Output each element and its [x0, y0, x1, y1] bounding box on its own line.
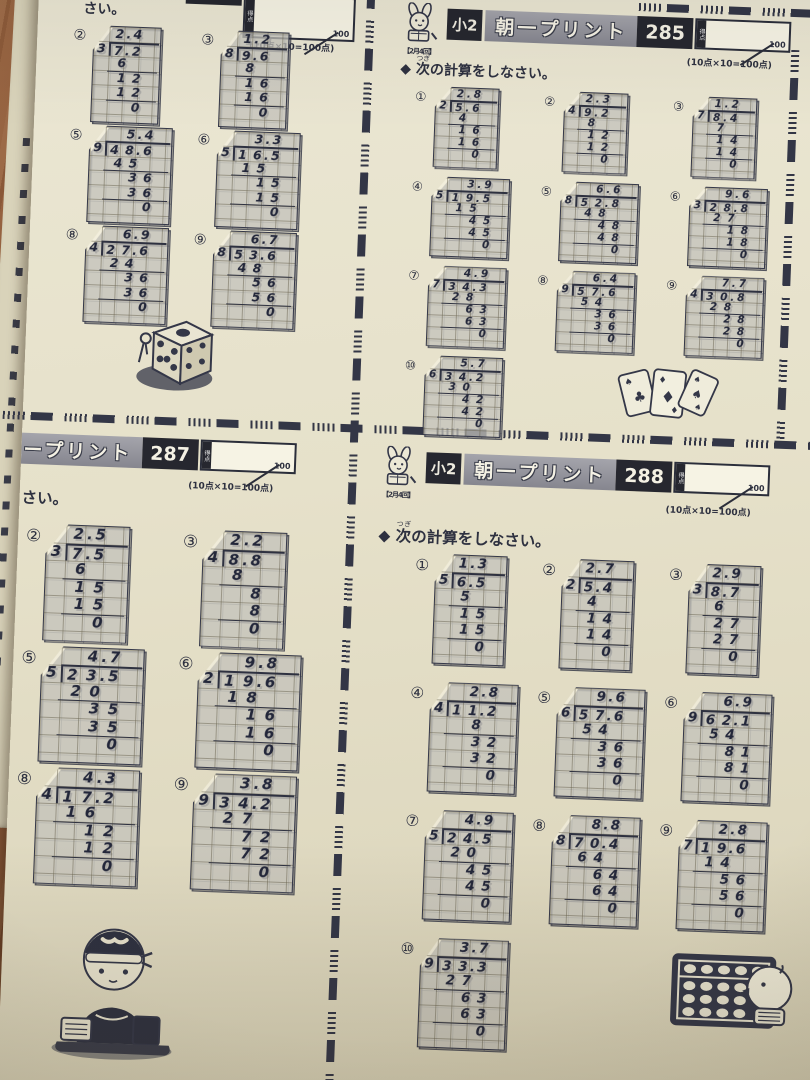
work-row: 0: [550, 898, 637, 918]
instruction-fragment: さい。: [83, 0, 126, 19]
divisor: 4: [203, 548, 223, 566]
work-row: 0: [692, 157, 754, 171]
division-problem: ⑦ 4.9 524.5 2045450: [402, 809, 533, 924]
score-box: 得点 100: [199, 440, 296, 475]
divisor: 4: [37, 785, 57, 803]
quadrant-285: 【2月4回】 小2 朝一プリント 285 得点 100 (10点×10=100点…: [373, 0, 810, 448]
division-problem: ⑥ 9.6 328.8 2718180: [667, 185, 799, 270]
problem-number: ⑧: [537, 273, 558, 289]
division-grid-card: 2.4 37.2 612120: [90, 25, 162, 125]
division-problem: ① 1.3 56.5 515150: [412, 553, 543, 668]
problem-number: ②: [73, 27, 94, 44]
problem-number: ⑧: [532, 817, 553, 836]
worksheet-paper: 284 得点 100 (10点×10=100点) さい。 ② 2.4 37.2 …: [0, 0, 810, 1080]
divisor: 4: [687, 288, 701, 301]
problem-number: ⑤: [21, 647, 42, 668]
division-grid-card: 9.8 219.6 1816160: [194, 651, 301, 771]
division-grid-card: 8.8 870.4 6464640: [549, 814, 641, 927]
problem-number: ⑩: [405, 357, 426, 373]
divisor: 2: [562, 576, 579, 593]
points-note: (10点×10=100点): [665, 502, 751, 518]
problem-number: ③: [183, 532, 204, 553]
division-problem: ③ 2.2 48.8 8880: [179, 529, 340, 652]
work-row: 0: [215, 203, 296, 221]
work-row: 0: [423, 893, 510, 913]
division-problem: ④ 3.9 519.5 1545450: [409, 175, 541, 260]
division-grid-card: 9.6 328.8 2718180: [687, 186, 768, 270]
divisor: 3: [689, 581, 706, 598]
division-grid-card: 6.4 957.6 5436360: [555, 270, 636, 354]
problem-number: ③: [669, 566, 690, 585]
division-grid-card: 1.3 56.5 515150: [432, 554, 508, 667]
series-title: 朝一プリント: [464, 454, 617, 491]
division-grid-card: 2.3 49.2 812120: [561, 91, 628, 174]
division-grid-card: 3.9 519.5 1545450: [429, 176, 510, 260]
divisor: 8: [561, 194, 575, 207]
division-grid-card: 3.3 516.5 1515150: [214, 130, 301, 230]
problem-number: ⑦: [405, 812, 426, 831]
work-row: 0: [434, 147, 496, 161]
division-grid-card: 2.8 411.2 832320: [427, 682, 519, 795]
problem-number: ⑨: [666, 277, 687, 293]
division-grid-card: 4.3 417.2 1612120: [33, 767, 140, 887]
divisor: 5: [432, 189, 446, 202]
division-grid-card: 4.9 524.5 2045450: [422, 810, 514, 923]
problem-number: ②: [544, 93, 565, 109]
division-problem: ② 2.4 37.2 612120: [70, 24, 202, 126]
problem-number: ②: [542, 561, 563, 580]
divisor: 8: [553, 832, 570, 849]
issue-label: 【2月4回】: [374, 489, 422, 501]
divisor: 8: [214, 245, 230, 260]
divisor: 5: [218, 145, 234, 160]
grade-label: 小2: [425, 452, 462, 484]
division-problem: ② 2.7 25.4 414140: [538, 558, 669, 673]
division-grid-card: 2.8 719.6 1456560: [675, 819, 767, 932]
division-grid-card: 4.9 734.3 2863630: [426, 265, 507, 349]
divisor: 5: [426, 827, 443, 844]
work-row: 0: [563, 152, 625, 166]
division-problem: ⑤ 9.6 657.6 5436360: [534, 686, 665, 801]
svg-text:♦: ♦: [670, 406, 679, 417]
work-row: 0: [91, 99, 158, 116]
problem-number: ⑨: [659, 822, 680, 841]
work-row: 0: [685, 336, 761, 351]
division-problem: ② 2.5 37.5 615150: [22, 523, 183, 646]
problem-number: ③: [201, 32, 222, 49]
points-note: (10点×10=100点): [188, 478, 274, 494]
problem-number: ⑤: [537, 689, 558, 708]
work-row: 0: [39, 734, 141, 755]
division-problem: ⑩ 5.7 634.2 3042420: [402, 354, 534, 439]
series-title-fragment: ープリント: [21, 433, 143, 469]
work-row: 0: [555, 770, 642, 790]
division-problem: ⑥ 6.9 962.1 5481810: [660, 691, 791, 806]
divisor: 9: [194, 791, 214, 809]
svg-text:♦: ♦: [658, 375, 667, 386]
division-problem: ③ 2.9 38.7 627270: [665, 563, 796, 678]
work-row: 0: [34, 855, 136, 876]
division-grid-card: 2.5 37.5 615150: [42, 524, 130, 644]
division-grid-card: 6.9 962.1 5481810: [680, 691, 772, 804]
division-grid-card: 6.6 852.8 4848480: [558, 181, 639, 265]
problems-285: ① 2.8 25.6 416160 ② 2.3 49.2 812120 ③: [402, 86, 802, 450]
work-row: 0: [44, 612, 127, 633]
score-label: 得点: [696, 20, 706, 47]
problem-number: ⑨: [193, 232, 214, 249]
divisor: 2: [198, 670, 218, 688]
work-row: 0: [196, 740, 298, 761]
work-row: 0: [560, 642, 631, 661]
division-problem: ④ 2.8 411.2 832320: [407, 681, 538, 796]
division-grid-card: 1.2 89.6 816160: [218, 30, 290, 130]
header-287: ープリント 287 得点 100: [21, 428, 297, 475]
division-grid-card: 2.7 25.4 414140: [558, 558, 634, 671]
division-problem: ⑧ 4.3 417.2 1612120: [13, 766, 174, 889]
work-row: 0: [428, 765, 515, 785]
divisor: 9: [558, 283, 572, 296]
division-problem: ⑩ 3.7 933.3 2763630: [397, 937, 528, 1052]
score-box: 得点 100: [694, 18, 791, 53]
dividend: 5.4: [578, 577, 632, 596]
rabbit-mascot-icon: 【2月4回】: [374, 445, 424, 501]
divisor: 3: [46, 542, 66, 560]
abacus-chick-illustration: [665, 939, 799, 1039]
problem-number: ⑧: [16, 769, 37, 790]
divisor: 6: [557, 704, 574, 721]
divisor: 3: [690, 199, 704, 212]
problem-number: ⑥: [669, 188, 690, 204]
divisor: 5: [435, 571, 452, 588]
instruction: ◆ 次つぎの計算をしなさい。: [378, 519, 551, 552]
title-banner: ープリント 287 得点 100: [21, 433, 297, 475]
division-grid-card: 3.8 934.2 2772720: [190, 773, 297, 893]
ninja-illustration: [46, 909, 182, 1064]
division-grid-card: 5.7 634.2 3042420: [422, 355, 503, 439]
rabbit-mascot-icon: 【2月4回】: [395, 2, 445, 58]
divisor: 9: [90, 141, 106, 156]
division-grid-card: 5.4 948.6 4536360: [86, 125, 173, 225]
work-row: 0: [430, 237, 506, 252]
divisor: 3: [94, 41, 110, 56]
worksheet-number: 288: [616, 460, 673, 493]
grade-label: 小2: [446, 9, 483, 41]
worksheet-photo: 284 得点 100 (10点×10=100点) さい。 ② 2.4 37.2 …: [0, 0, 810, 1080]
score-label: 得点: [201, 442, 211, 469]
work-row: 0: [191, 861, 293, 882]
work-row: 0: [687, 647, 758, 666]
problem-number: ⑥: [664, 694, 685, 713]
division-problem: ⑤ 6.6 852.8 4848480: [538, 180, 670, 265]
quadrant-288: 【2月4回】 小2 朝一プリント 288 得点 100 (10点×10=100点…: [340, 435, 810, 1080]
work-row: 0: [688, 247, 764, 262]
division-problem: ⑧ 8.8 870.4 6464640: [529, 814, 660, 929]
division-problem: ⑧ 6.4 957.6 5436360: [535, 270, 667, 355]
divisor: 4: [431, 699, 448, 716]
worksheet-number: 285: [637, 16, 694, 49]
problem-number: ⑦: [408, 268, 429, 284]
problem-number: ⑩: [400, 940, 421, 959]
title-banner: 小2 朝一プリント 288 得点 100: [425, 452, 770, 496]
dividend: 8.7: [705, 582, 759, 601]
worksheet-number: 284: [186, 0, 243, 6]
division-problem: ⑨ 7.7 430.8 2828280: [664, 274, 796, 359]
problem-number: ④: [412, 178, 433, 194]
problems-287: ② 2.5 37.5 615150 ③ 2.2 48.8 8880 ⑤: [13, 523, 341, 895]
division-grid-card: 9.6 657.6 5436360: [553, 686, 645, 799]
work-row: 0: [682, 775, 769, 795]
quadrant-287: ープリント 287 得点 100 (10点×10=100点) さい。 ② 2.5…: [0, 422, 352, 1080]
work-row: 0: [433, 637, 504, 656]
dice-illustration: [122, 310, 225, 399]
division-problem: ③ 1.2 89.6 816160: [198, 29, 330, 131]
problem-number: ⑥: [178, 653, 199, 674]
divisor: 5: [42, 664, 62, 682]
problem-number: ④: [410, 684, 431, 703]
work-row: 0: [88, 198, 169, 216]
problem-number: ⑤: [540, 183, 561, 199]
divisor: 2: [436, 99, 450, 112]
points-note: (10点×10=100点): [687, 55, 773, 71]
division-problem: ⑦ 4.9 734.3 2863630: [406, 265, 538, 350]
instruction-fragment: さい。: [21, 486, 68, 510]
division-grid-card: 2.9 38.7 627270: [685, 563, 761, 676]
score-label: 得点: [675, 464, 685, 491]
divisor: 9: [421, 955, 438, 972]
series-title: 朝一プリント: [485, 10, 638, 47]
division-grid-card: 2.2 48.8 8880: [199, 530, 287, 650]
work-row: 0: [424, 416, 500, 431]
problem-number: ⑤: [69, 127, 90, 144]
work-row: 0: [559, 242, 635, 257]
division-grid-card: 4.7 523.5 2035350: [37, 645, 144, 765]
problem-number: ⑨: [173, 775, 194, 796]
divisor: 8: [222, 46, 238, 61]
work-row: 0: [219, 104, 286, 121]
division-problem: ② 2.3 49.2 812120: [542, 90, 674, 175]
problem-number: ⑥: [197, 132, 218, 149]
dividend: 6.5: [451, 572, 505, 591]
division-problem: ③ 1.2 78.4 714140: [670, 95, 802, 180]
division-problem: ⑥ 3.3 516.5 1515150: [194, 129, 326, 231]
svg-text:♦: ♦: [660, 387, 676, 407]
problem-number: ①: [415, 89, 436, 105]
title-banner: 小2 朝一プリント 285 得点 100: [446, 9, 791, 53]
work-row: 0: [427, 326, 503, 341]
problems-284: ② 2.4 37.2 612120 ③ 1.2 89.6 816160 ⑤: [62, 24, 329, 331]
divisor: 4: [86, 240, 102, 255]
division-problem: ⑤ 4.7 523.5 2035350: [17, 644, 178, 767]
division-problem: ⑥ 9.8 219.6 1816160: [174, 650, 335, 773]
score-box: 得点 100: [673, 462, 770, 497]
problem-number: ②: [26, 526, 47, 547]
divisor: 7: [429, 278, 443, 291]
divisor: 6: [425, 368, 439, 381]
division-problem: ⑨ 2.8 719.6 1456560: [656, 819, 787, 934]
work-row: 0: [556, 331, 632, 346]
problem-number: ①: [415, 556, 436, 575]
instruction: ◆ 次つぎの計算をしなさい。: [400, 54, 556, 84]
division-grid-card: 7.7 430.8 2828280: [684, 275, 765, 359]
division-grid-card: 1.2 78.4 714140: [690, 96, 757, 179]
quadrant-284: 284 得点 100 (10点×10=100点) さい。 ② 2.4 37.2 …: [23, 0, 370, 424]
problem-number: ⑧: [65, 227, 86, 244]
problem-number: ③: [673, 98, 694, 114]
divisor: 7: [694, 109, 708, 122]
worksheet-number: 287: [142, 437, 199, 470]
divisor: 9: [684, 709, 701, 726]
division-problem: ① 2.8 25.6 416160: [413, 86, 545, 171]
division-grid-card: 2.8 25.6 416160: [433, 86, 500, 169]
work-row: 0: [677, 903, 764, 923]
division-problem: ⑨ 3.8 934.2 2772720: [170, 772, 331, 895]
divisor: 7: [679, 837, 696, 854]
divisor: 4: [565, 104, 579, 117]
playing-cards-illustration: ♠♣ ♦♦♦ ♠♠♠: [611, 360, 723, 426]
division-grid-card: 3.7 933.3 2763630: [417, 938, 509, 1051]
work-row: 0: [200, 618, 283, 639]
division-problem: ⑤ 5.4 948.6 4536360: [66, 124, 198, 226]
work-row: 0: [418, 1021, 505, 1041]
